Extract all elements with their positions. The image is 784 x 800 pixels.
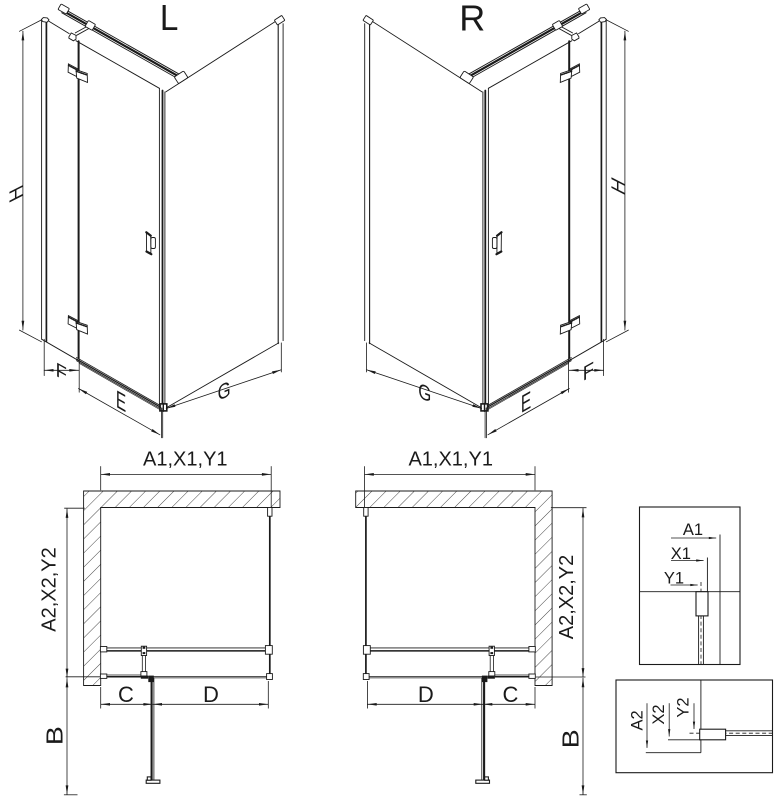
svg-text:C: C [503, 682, 519, 707]
svg-text:D: D [418, 682, 434, 707]
svg-text:A2,X2,Y2: A2,X2,Y2 [39, 547, 61, 632]
svg-text:D: D [203, 682, 219, 707]
svg-text:Y1: Y1 [664, 569, 684, 587]
svg-text:A1,X1,Y1: A1,X1,Y1 [143, 449, 228, 471]
svg-text:C: C [118, 682, 134, 707]
svg-text:X1: X1 [671, 545, 691, 563]
svg-text:E: E [116, 385, 126, 418]
svg-text:X2: X2 [650, 704, 668, 724]
svg-text:A1,X1,Y1: A1,X1,Y1 [408, 448, 493, 470]
svg-text:A2,X2,Y2: A2,X2,Y2 [556, 555, 578, 640]
svg-text:R: R [459, 0, 485, 39]
svg-text:B: B [557, 729, 584, 748]
svg-text:Y2: Y2 [675, 697, 693, 717]
svg-text:E: E [521, 386, 531, 419]
svg-text:B: B [41, 726, 68, 745]
svg-text:A1: A1 [683, 521, 703, 539]
svg-text:A2: A2 [629, 710, 647, 730]
svg-text:L: L [160, 0, 179, 38]
